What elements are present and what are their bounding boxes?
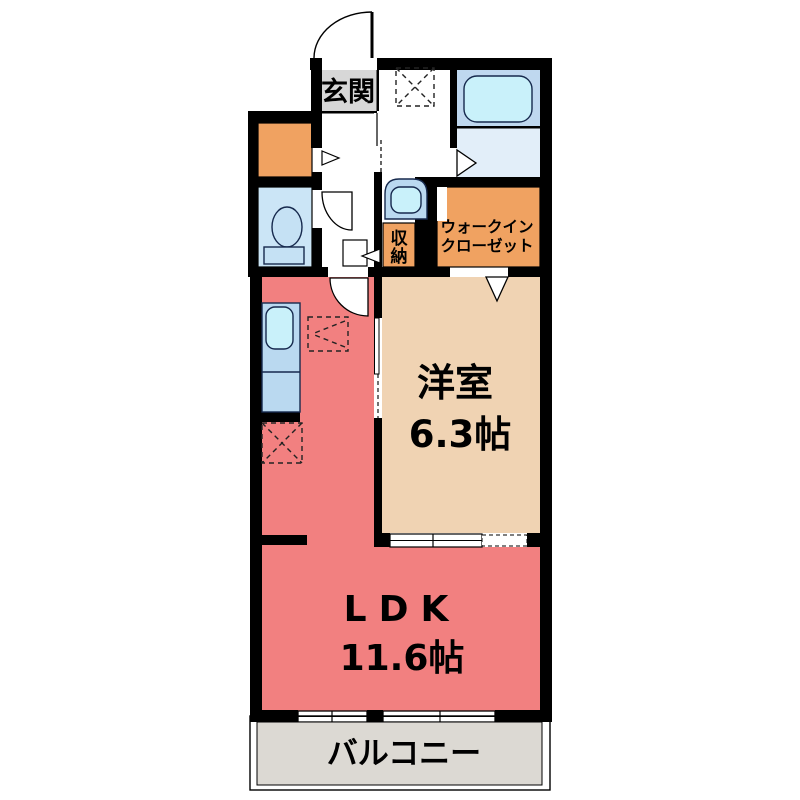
storage-label-char2: 納 <box>391 246 408 267</box>
sliding-door-pocket <box>482 535 527 546</box>
wall-segment <box>250 267 262 722</box>
wall-segment <box>377 70 380 111</box>
western-room-label: 洋室 <box>417 361 493 405</box>
ldk-size: 11.6帖 <box>340 638 465 679</box>
storage-label-char1: 収 <box>391 229 409 249</box>
hall-closet-floor <box>258 123 312 177</box>
wall-segment <box>312 172 322 190</box>
toilet-icon <box>272 207 302 247</box>
wall-segment <box>374 418 382 533</box>
wall-segment <box>437 177 552 187</box>
floor-plan-page: 玄関 ウォークイン クローゼット 収 納 洋室 6.3帖 LDK 11.6帖 バ… <box>0 0 800 800</box>
wall-segment <box>377 58 552 70</box>
wall-segment <box>450 58 457 148</box>
western-room-size: 6.3帖 <box>409 413 512 456</box>
wall-segment <box>374 172 382 318</box>
wall-segment <box>248 111 258 277</box>
ldk-label: LDK <box>344 589 461 630</box>
wic-door-opening <box>437 187 447 221</box>
hall-door-leaf <box>343 240 367 266</box>
bathtub-icon <box>464 76 532 122</box>
kitchen-sink-icon <box>266 307 293 349</box>
toilet-tank-icon <box>264 247 304 264</box>
wic-label-line1: ウォークイン <box>440 218 533 236</box>
genkan-label: 玄関 <box>321 76 375 108</box>
washbasin-bowl-icon <box>391 187 421 213</box>
wall-segment <box>540 58 552 722</box>
wic-label-line2: クローゼット <box>440 236 533 255</box>
wall-segment <box>312 228 322 277</box>
sliding-door-panel <box>375 318 380 374</box>
entrance-door-leaf <box>371 12 374 58</box>
washroom-sliding-door <box>374 113 384 172</box>
bathroom-floor <box>457 128 540 177</box>
floor-plan-drawing: 玄関 ウォークイン クローゼット 収 納 洋室 6.3帖 LDK 11.6帖 バ… <box>0 0 800 800</box>
balcony-label: バルコニー <box>327 736 481 772</box>
wall-segment <box>248 111 322 123</box>
wall-segment <box>374 533 390 547</box>
western-room-floor <box>382 277 540 533</box>
wall-segment <box>248 177 322 187</box>
genkan-step-line <box>322 111 377 114</box>
wall-segment <box>527 533 540 547</box>
bath-divider-line <box>457 126 540 129</box>
